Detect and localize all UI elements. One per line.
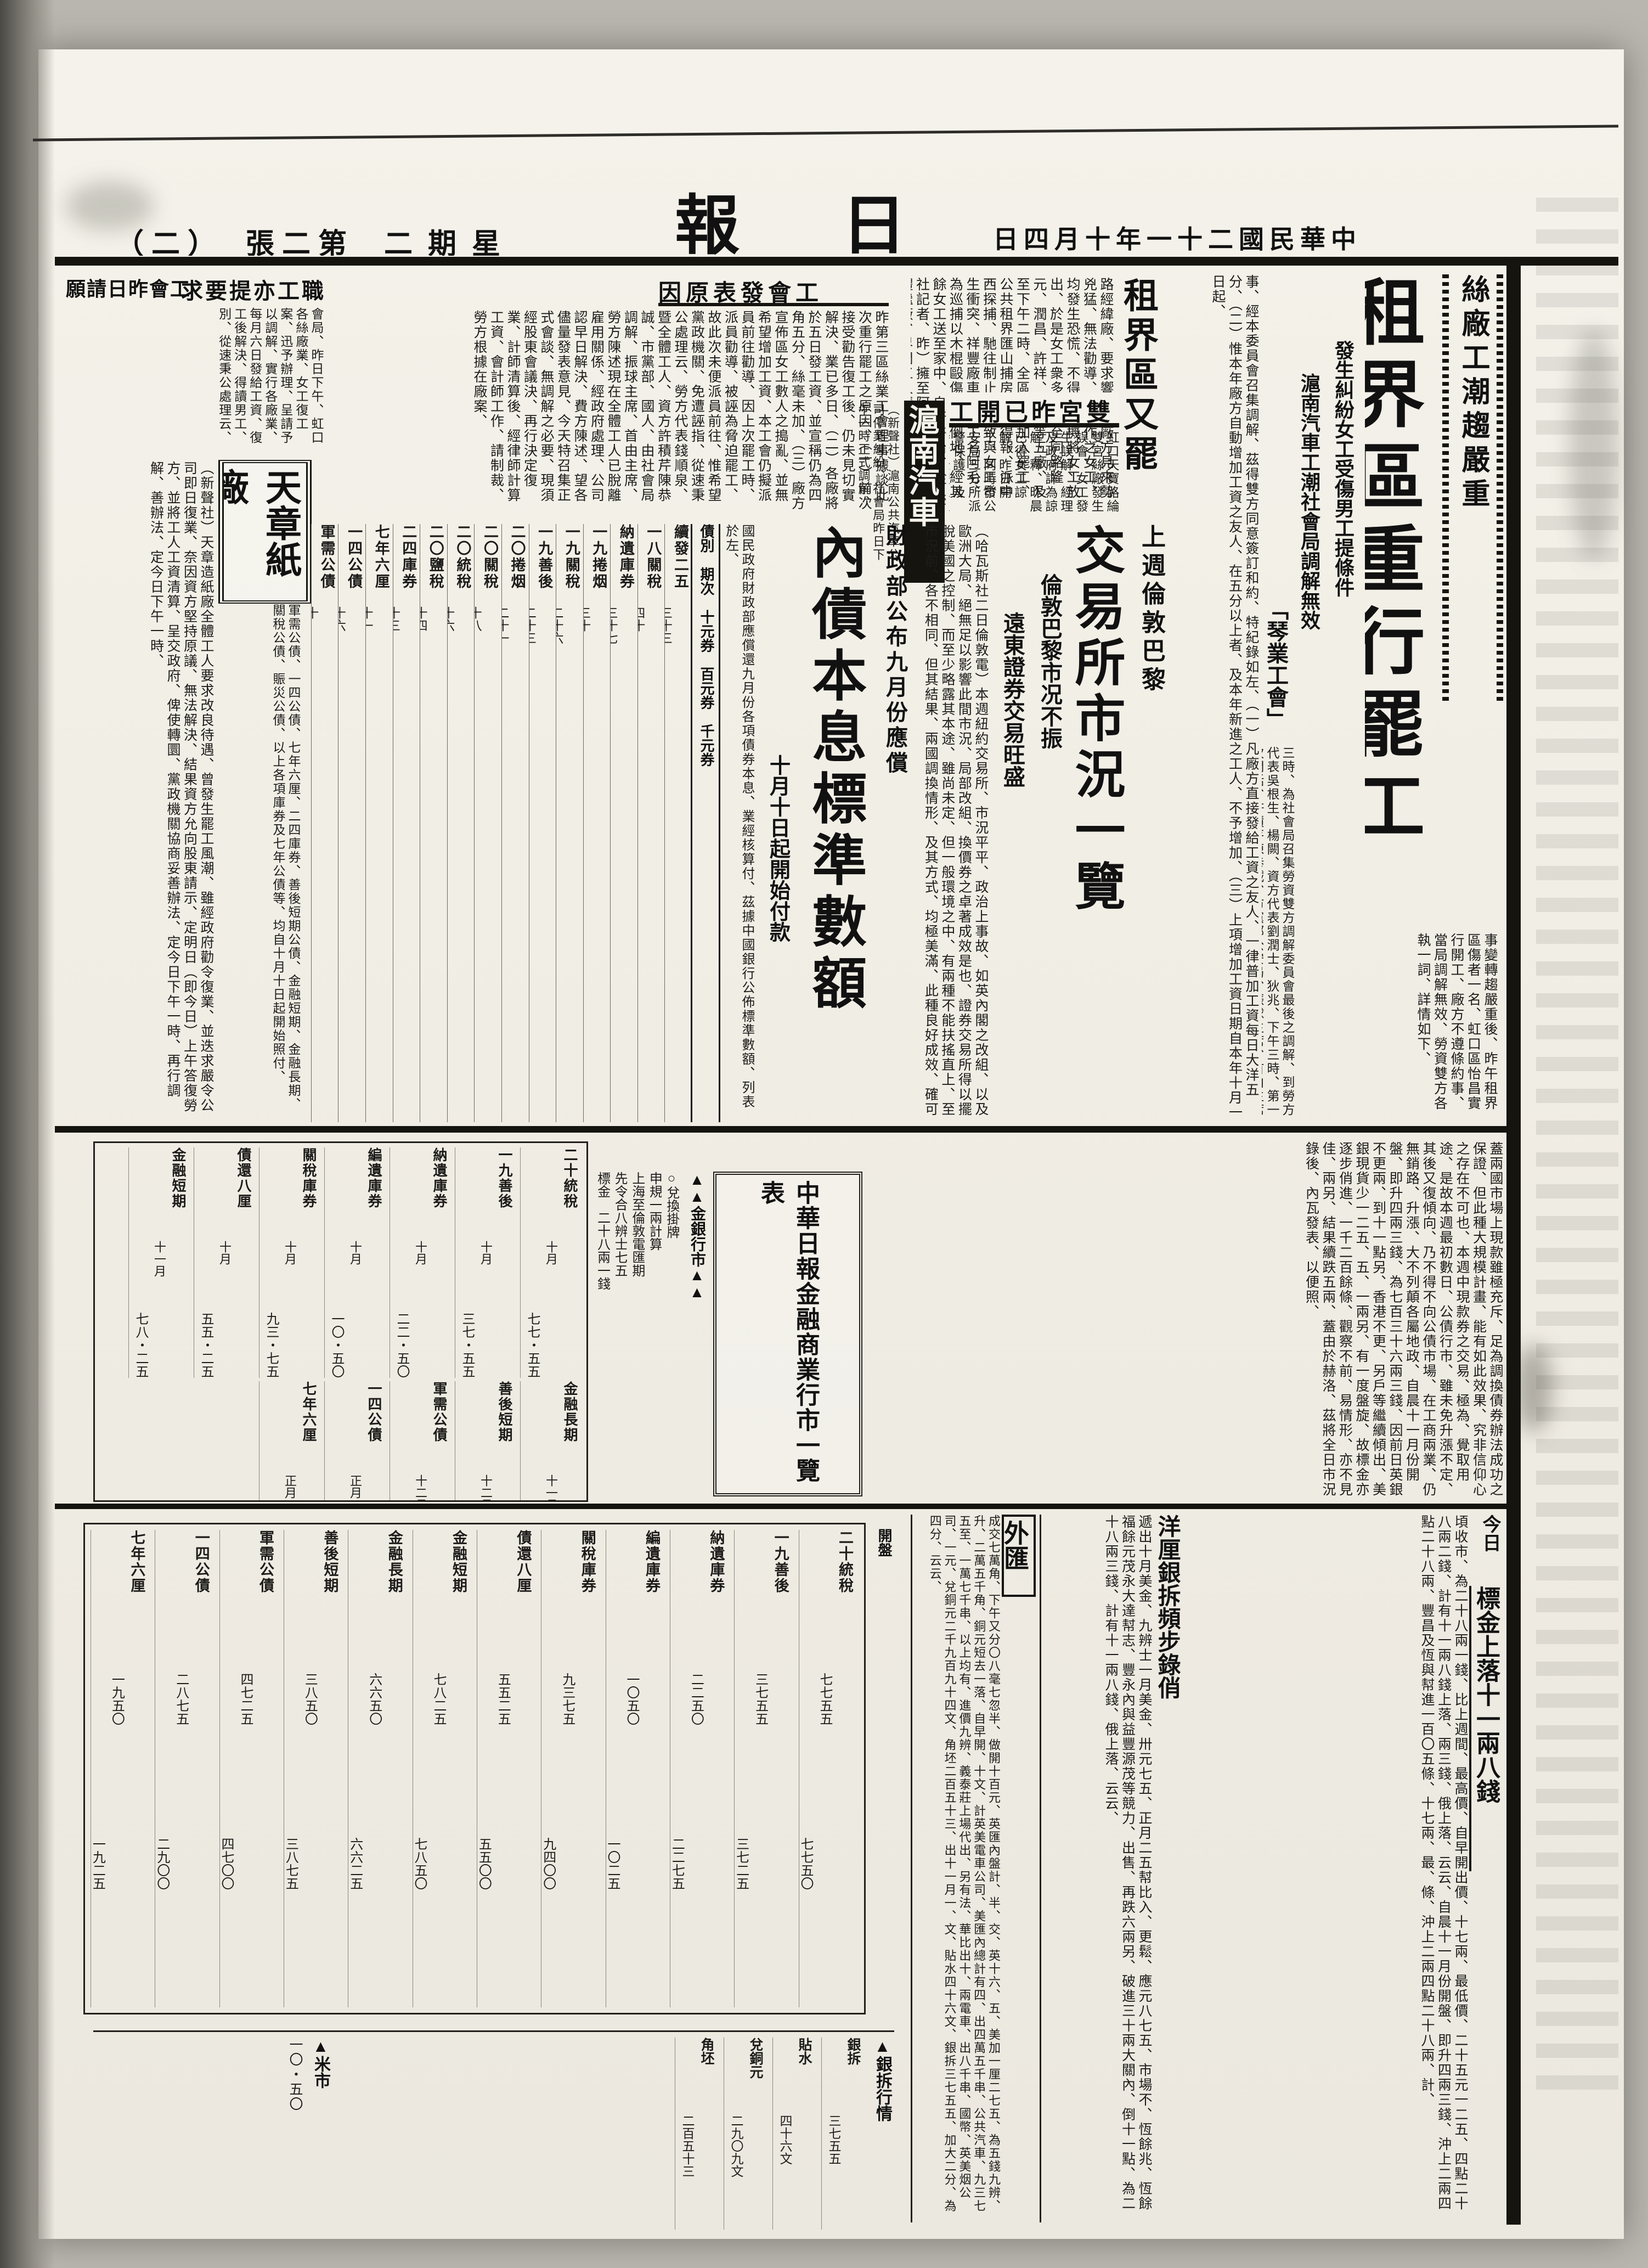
board-column: 軍需公債 四七二五 四七〇〇 [219, 1530, 279, 2007]
bond-period: 三十 [583, 606, 590, 1122]
tianzhang-headline-box: 天章紙廠 [218, 460, 312, 604]
quote-column: 七年六厘 正月 一九・五〇 [259, 1381, 321, 1502]
board-close: 二二七五 [670, 1837, 686, 2007]
exchange-body-2: 蓋兩國市場上現款雖極充斥、足為調換債券辦法成功之保證、但此種大規模計畫、能有如此… [933, 1141, 1503, 1498]
board-name: 關稅庫券 [577, 1530, 599, 2007]
bond-period: 二十三 [529, 606, 536, 1122]
board-close: 五五〇〇 [477, 1837, 493, 2007]
board-name: 金融短期 [448, 1530, 470, 2007]
quote-name: 金融長期 [560, 1381, 580, 1502]
bond-column: 二四庫券 十三 息一角 息一元五角 [393, 524, 418, 1122]
lead-kicker-wrap: 絲廠工潮趨嚴重 [1442, 274, 1503, 702]
board-open: 七八二五 [429, 1673, 448, 2007]
bond-column: 七年六厘 十一 息一元五角 息一一元五角 [365, 524, 391, 1122]
exchange-decks: 倫敦巴黎市况不振 遠東證券交易旺盛 [996, 524, 1065, 1122]
quote-name: 債還八厘 [233, 1147, 253, 1378]
board-open: 三七五五 [751, 1673, 770, 2007]
board-column: 一四公債 二八七五 二九〇〇 [155, 1530, 215, 2007]
bank-rate-value: 二九〇九文 [726, 2114, 745, 2230]
bond-column: 二〇鹽稅 十四 本息五分 息一元五角 [420, 524, 445, 1122]
board-column: 二十統稅 七七五五 七七五〇 [799, 1530, 859, 2007]
board-column: 編遺庫券 一〇五〇 一〇二五 [606, 1530, 665, 2007]
quote-column: 編遺庫券 十月 一〇・五〇 [324, 1147, 386, 1378]
quote-month: 十二月 [477, 1475, 494, 1502]
quote-column: 關稅庫券 十月 九三・七五 [259, 1147, 321, 1378]
quote-price: 七八・二五 [131, 1312, 150, 1378]
bond-name: 軍需公債 [318, 524, 335, 1122]
quote-month: 十月 [281, 1241, 298, 1378]
bond-name: 二〇關稅 [481, 524, 498, 1122]
bond-subhead: 十月十日起開始付款 [765, 755, 793, 1062]
bank-rate-table: 銀拆 三七五五 貼水 四十六文 兌銅元 二九〇九文 角坯 二百五十三 [371, 2038, 865, 2230]
gold-silver-item: ○兌換掛牌 [667, 1172, 679, 1490]
bond-article: 財政部公布九月份應償 內債本息標準數額 十月十日起開始付款 [765, 524, 911, 1122]
board-close: 七七五〇 [799, 1837, 815, 2007]
quote-name: 一九善後 [494, 1147, 515, 1378]
quote-month: 十月 [216, 1241, 233, 1378]
union-subhead: 「琴業工會」 [1262, 598, 1291, 741]
bond-period: 十 [311, 606, 318, 1122]
bond-table: 續發二五 三十三 本一元一角 本一一元 息一角五分 一八關稅 四十 息一角 本一… [311, 524, 690, 1122]
quote-name: 關稅庫券 [298, 1147, 319, 1378]
board-open: 九三七五 [558, 1673, 577, 2007]
masthead-edition: （二） 張二第 [115, 221, 373, 256]
quote-name: 納遺庫券 [429, 1147, 449, 1378]
masthead-date: 日四月十年一十二國民華中 [993, 220, 1421, 255]
bank-rate-header: ▲銀拆行情 [870, 2038, 894, 2224]
quote-price: 二二・五〇 [392, 1312, 411, 1378]
bond-headline: 內債本息標準數額 [801, 524, 874, 1119]
bond-period: 二十一 [501, 606, 509, 1122]
bond-period: 十三 [393, 606, 400, 1122]
gold-report: 今日 標金上落十一兩八錢 頃收市、為二十八兩一錢、比上週間、最高價、自早開出價、… [1190, 1515, 1503, 2222]
union-petition-headline: 願請日昨會工 [66, 273, 192, 301]
quote-price: 七七・五五 [523, 1312, 542, 1378]
workers-demand-headline: 求要提亦工職 [181, 273, 335, 301]
board-name: 一九善後 [770, 1530, 792, 2007]
quote-price: 九三・七五 [262, 1312, 281, 1378]
board-column: 善後短期 三八五〇 三八七五 [284, 1530, 343, 2007]
rice-market-header: ▲米市 [308, 2038, 332, 2224]
bond-column: 續發二五 三十三 本一元一角 本一一元 息一角五分 [664, 524, 690, 1122]
lead-deck2: 滬南汽車工潮社會局調解無效 [1295, 373, 1323, 977]
bond-period: 四十 [637, 606, 645, 1122]
quote-month: 十月 [477, 1241, 494, 1378]
bond-name: 一九捲烟 [590, 524, 607, 1122]
silver-report-body: 遞出十月美金、九辨士一月美金、卅元七五、正月二五幇比入、更鬆、應元八七五、市場不… [1045, 1515, 1152, 2220]
gold-silver-item: 標金 二十八兩一錢 [598, 1172, 610, 1490]
newspaper-scan-page: { "masthead": { "title": "中華日報", "title_… [0, 0, 1648, 2268]
board-column: 金融長期 六六五〇 六六二五 [348, 1530, 408, 2007]
masthead-weekday: 二期星 [384, 221, 538, 256]
quote-month: 十二月 [411, 1475, 429, 1502]
board-name: 軍需公債 [255, 1530, 276, 2007]
bond-name: 一九關稅 [563, 524, 579, 1122]
bank-rate-column: 角坯 二百五十三 [675, 2038, 718, 2230]
shuanggong-headline: 工開已昨宮雙 [949, 392, 1119, 427]
bond-column: 一九捲烟 三十 息二分一角 息二角一分五 [583, 524, 608, 1122]
quote-month: 十月 [346, 1241, 364, 1378]
board-close: 三七二五 [734, 1837, 750, 2007]
board-close: 二九〇〇 [155, 1837, 171, 2007]
board-open: 一九五〇 [107, 1673, 126, 2007]
bond-name: 七年六厘 [373, 524, 389, 1122]
band-rule-2 [55, 1504, 1506, 1509]
board-column: 金融短期 七八二五 七八五〇 [413, 1530, 472, 2007]
tianzhang-headline: 天章紙廠 [224, 469, 306, 595]
bond-period: 十六 [447, 606, 454, 1122]
bond-period: 二十六 [556, 606, 563, 1122]
bond-name: 一八關稅 [645, 524, 661, 1122]
bond-period: 十六 [338, 606, 345, 1122]
gold-silver-header: ▲▲金銀行市▲▲ [684, 1172, 708, 1490]
bond-name: 一四公債 [345, 524, 362, 1122]
price-board: 二十統稅 七七五五 七七五〇 一九善後 三七五五 三七二五 納遺庫券 二二五〇 … [83, 1523, 866, 2014]
quote-column: 一四公債 正月 二八・七五 [324, 1381, 386, 1502]
bank-rate-value: 三七五五 [824, 2114, 843, 2230]
tianzhang-body: （新聲社）天章造紙廠全體工人要求改良待遇、曾發生罷工風潮、雖經政府勸令復業、並迭… [66, 461, 214, 1119]
scan-gutter-shadow [0, 0, 55, 2268]
board-name: 納遺庫券 [706, 1530, 727, 2007]
quote-name: 軍需公債 [429, 1381, 449, 1502]
exchange-deck2: 遠東證券交易旺盛 [996, 612, 1028, 1106]
board-open: 三八五〇 [300, 1673, 319, 2007]
quote-column: 軍需公債 十二月 四七・二五 [390, 1381, 451, 1502]
price-board-zone: 開盤 二十統稅 七七五五 七七五〇 一九善後 三七五五 三七二五 納遺庫券 二二… [93, 1523, 894, 2006]
board-name: 二十統稅 [834, 1530, 856, 2007]
gold-silver-item: 申規一兩計算 [650, 1172, 662, 1490]
exchange-headline: 交易所市況一覽 [1073, 524, 1132, 1117]
bond-name: 二〇捲烟 [509, 524, 525, 1122]
bond-column: 二〇統稅 十六 息五分 本四角五分 [447, 524, 472, 1122]
board-close: 一九二五 [91, 1837, 107, 2007]
board-close: 六六二五 [348, 1837, 364, 2007]
bank-rate-label: 銀拆 [843, 2038, 862, 2230]
bond-column: 一八關稅 四十 息一角 本一元 息一元 本一一元 [637, 524, 663, 1122]
gold-silver-items: ○兌換掛牌申規一兩計算上海至倫敦電匯期先令合八辨士七五標金 二十八兩一錢 [598, 1172, 679, 1490]
quote-month: 十一月 [150, 1241, 168, 1378]
bank-rate-label: 貼水 [794, 2038, 814, 2230]
fx-report-body: 成交七萬角、下午又分〇八毫七忽半、做開十百元、英匯內盤計、半、交、英十六、五、美… [916, 1515, 1001, 2220]
bond-column: 一九善後 二十三 本息六分四 息三角六分 [529, 524, 554, 1122]
quote-column: 金融短期 十一月 七八・二五 [128, 1147, 190, 1378]
board-open: 六六五〇 [365, 1673, 384, 2007]
board-close: 七八五〇 [413, 1837, 429, 2007]
bond-column: 一四公債 十六 息一角五分 息一元五角分 [338, 524, 363, 1122]
scan-stain [1569, 329, 1618, 560]
quote-column: 債還八厘 十月 五五・二五 [194, 1147, 256, 1378]
board-column: 納遺庫券 二二五〇 二二七五 [670, 1530, 730, 2007]
bond-period: 三十三 [664, 606, 671, 1122]
again-strike-headline: 租界區又罷工 [1119, 277, 1163, 508]
board-name: 七年六厘 [126, 1530, 148, 2007]
masthead-title: 報 日 華 中 [675, 173, 1004, 255]
quote-column: 善後短期 十二月 三八・五〇 [455, 1381, 517, 1502]
board-column: 債還八厘 五五二五 五五〇〇 [477, 1530, 537, 2007]
bank-rate-label: 兌銅元 [745, 2038, 765, 2230]
quote-price: 三七・五五 [458, 1312, 477, 1378]
zigzag-ornament [1442, 274, 1449, 702]
gold-report-label: 今日 [1478, 1515, 1503, 1580]
bond-table-colhead: 債別 期次 十元券 百元券 千元券 [691, 524, 720, 1122]
bond-period: 十一 [365, 606, 373, 1122]
board-open: 二二五〇 [686, 1673, 706, 2007]
quote-name: 七年六厘 [298, 1381, 319, 1502]
silver-report: 洋厘銀拆頻步錄俏 遞出十月美金、九辨士一月美金、卅元七五、正月二五幇比入、更鬆、… [1040, 1515, 1184, 2222]
quote-month: 正月 [281, 1475, 298, 1502]
rice-market-value: 一〇・五〇 [279, 2038, 303, 2224]
lead-body: 事變轉趨嚴重後、昨午租界區傷者一名、虹口區怡昌實行開工、廠方不遵條約事、當局調解… [1306, 933, 1498, 1122]
board-close: 四七〇〇 [219, 1837, 236, 2007]
quote-table: 二十統稅 十月 七七・五五 一九善後 十月 三七・五五 納遺庫券 十月 二二・五… [93, 1141, 588, 1502]
quote-name: 金融短期 [168, 1147, 188, 1378]
quote-month: 十月 [411, 1241, 429, 1378]
bond-period: 十八 [474, 606, 481, 1122]
gold-silver-board: ▲▲金銀行市▲▲ ○兌換掛牌申規一兩計算上海至倫敦電匯期先令合八辨士七五標金 二… [598, 1172, 708, 1490]
bond-period: 十四 [420, 606, 427, 1122]
board-close: 一〇二五 [606, 1837, 622, 2007]
shuanggong-body: 虹口天寶路綸雙宮絲廠發生誤會、女工發生誤解、經理及政府詳為諒解、釋、昨晨已得女工… [949, 431, 1119, 513]
board-name: 債還八厘 [512, 1530, 534, 2007]
band-rule-1 [55, 1126, 1506, 1133]
board-open: 七七五五 [815, 1673, 834, 2007]
exchange-kicker: 上週倫敦巴黎 [1140, 524, 1169, 864]
board-name: 編遺庫券 [641, 1530, 663, 2007]
bank-rate-column: 貼水 四十六文 [772, 2038, 816, 2230]
fx-report-headline: 外匯 [1002, 1515, 1036, 1597]
zigzag-ornament [1497, 274, 1503, 702]
bond-name: 續發二五 [671, 524, 688, 1122]
board-name: 一四公債 [191, 1530, 212, 2007]
board-column: 關稅庫券 九三七五 九四〇〇 [541, 1530, 601, 2007]
quote-name: 編遺庫券 [364, 1147, 384, 1378]
bond-table-intro: 國民政府財政部應償還九月份各項債券本息、業經核算付、茲據中國銀行公佈標準數額、列… [724, 524, 754, 1122]
union-body: 事、經本委員會召集調解、茲得雙方同意簽訂和約、特紀錄如左、（一）凡廠方直接發給工… [1171, 274, 1259, 1122]
exchange-body-1: （哈瓦斯社二日倫敦電）本週紐約交易所、市況平平、政治上事故、如英內閣之改組、以及… [922, 524, 989, 1117]
bond-period: 三十七 [610, 606, 617, 1122]
quote-month: 正月 [346, 1475, 364, 1502]
bond-column: 軍需公債 十 息一角五分 息一元五角 [311, 524, 336, 1122]
quote-column: 金融長期 十一月 六六・五〇 [520, 1381, 582, 1502]
exchange-article: 上週倫敦巴黎 交易所市況一覽 倫敦巴黎市况不振 遠東證券交易旺盛 （哈瓦斯社二日… [922, 524, 1169, 1122]
bond-column: 二〇關稅 十八 本四分 息四分 本四角 息四角四分 [474, 524, 499, 1122]
fx-report: 外匯 成交七萬角、下午又分〇八毫七忽半、做開十百元、英匯內盤計、半、交、英十六、… [911, 1515, 1036, 2222]
gold-silver-item: 先令合八辨士七五 [616, 1172, 628, 1490]
gold-report-body: 頃收市、為二十八兩一錢、比上週間、最高價、自早開出價、十七兩、最低價、二十五元一… [1194, 1515, 1468, 2220]
board-name: 善後短期 [319, 1530, 341, 2007]
board-col-open: 開盤 [872, 1528, 894, 2000]
bond-name: 納遺庫券 [617, 524, 634, 1122]
quote-month: 十一月 [542, 1475, 560, 1502]
workers-demand-body: 會局、昨日下午、虹口各絲廠業、女工復工案、迅予辦理、呈請予以調解、實行各廠業、每… [66, 307, 324, 455]
board-close: 三八七五 [284, 1837, 300, 2007]
bond-name: 一九善後 [535, 524, 552, 1122]
board-name: 金融長期 [384, 1530, 405, 2007]
quote-name: 一四公債 [364, 1381, 384, 1502]
quote-name: 善後短期 [494, 1381, 515, 1502]
bond-column: 一九關稅 二十六 本息四分八 息八角七分 [556, 524, 581, 1122]
exchange-deck1: 倫敦巴黎市况不振 [1034, 573, 1065, 1067]
lead-kicker: 絲廠工潮趨嚴重 [1452, 274, 1493, 702]
gold-silver-item: 上海至倫敦電匯期 [633, 1172, 645, 1490]
lead-deck1: 發生糾紛女工受傷男工提條件 [1329, 340, 1357, 944]
gold-report-headline: 標金上落十一兩八錢 [1469, 1586, 1503, 1871]
union-statement-headline: 因原表發會工 [658, 274, 889, 306]
bond-name: 二〇鹽稅 [427, 524, 443, 1122]
bank-rate-column: 銀拆 三七五五 [821, 2038, 865, 2230]
meeting-body: 三時、為社會局召集勞資雙方調解委員會最後之調解、到勞方代表吳根生、楊闕、資方代表… [1262, 746, 1295, 1122]
quote-column: 納遺庫券 十月 二二・五〇 [390, 1147, 451, 1378]
bond-table-zone: 國民政府財政部應償還九月份各項債券本息、業經核算付、茲據中國銀行公佈標準數額、列… [310, 524, 754, 1122]
right-border-rule [1506, 266, 1521, 2225]
quote-price: 五五・二五 [196, 1312, 216, 1378]
bond-column: 二〇捲烟 二十一 息四分 息四角二分 [501, 524, 527, 1122]
bond-column: 納遺庫券 三十七 息七分 息七角 [610, 524, 635, 1122]
bond-name: 二四庫券 [400, 524, 416, 1122]
bond-name: 二〇統稅 [454, 524, 471, 1122]
market-table-title-box: 中華日報金融商業行市一覽表 [713, 1172, 862, 1496]
quote-price: 一〇・五〇 [327, 1312, 346, 1378]
side-tables: ▲銀拆行情 銀拆 三七五五 貼水 四十六文 兌銅元 二九〇九文 角坯 二百五十三… [93, 2030, 894, 2230]
bond-kicker: 財政部公布九月份應償 [882, 524, 911, 831]
board-open: 五五二五 [493, 1673, 512, 2007]
bank-rate-value: 二百五十三 [678, 2114, 696, 2230]
board-open: 二八七五 [172, 1673, 191, 2007]
board-column: 一九善後 三七五五 三七二五 [734, 1530, 794, 2007]
bank-rate-column: 兌銅元 二九〇九文 [724, 2038, 767, 2230]
bank-rate-value: 四十六文 [775, 2114, 794, 2230]
board-open: 一〇五〇 [622, 1673, 641, 2007]
header-rule [55, 257, 1618, 266]
quote-month: 十月 [542, 1241, 560, 1378]
silver-report-headline: 洋厘銀拆頻步錄俏 [1156, 1515, 1184, 1772]
board-open: 四七二五 [236, 1673, 255, 2007]
bond-list-note: 軍需公債、一四公債、七年六厘、二四庫券、善後短期公債、金融短期、金融長期、關稅公… [218, 604, 301, 1119]
quote-name: 二十統稅 [560, 1147, 580, 1378]
board-column: 七年六厘 一九五〇 一九二五 [91, 1530, 150, 2007]
quote-column: 二十統稅 十月 七七・五五 [520, 1147, 582, 1378]
union-statement-body: 昨第三區絲業工會理事據談此次重行罷工之原因、（一）前次接受勸告復工後、仍未見切實… [340, 310, 889, 513]
board-close: 九四〇〇 [541, 1837, 557, 2007]
quote-column: 一九善後 十月 三七・五五 [455, 1147, 517, 1378]
market-table-title: 中華日報金融商業行市一覽表 [753, 1180, 823, 1488]
bank-rate-label: 角坯 [696, 2038, 716, 2230]
